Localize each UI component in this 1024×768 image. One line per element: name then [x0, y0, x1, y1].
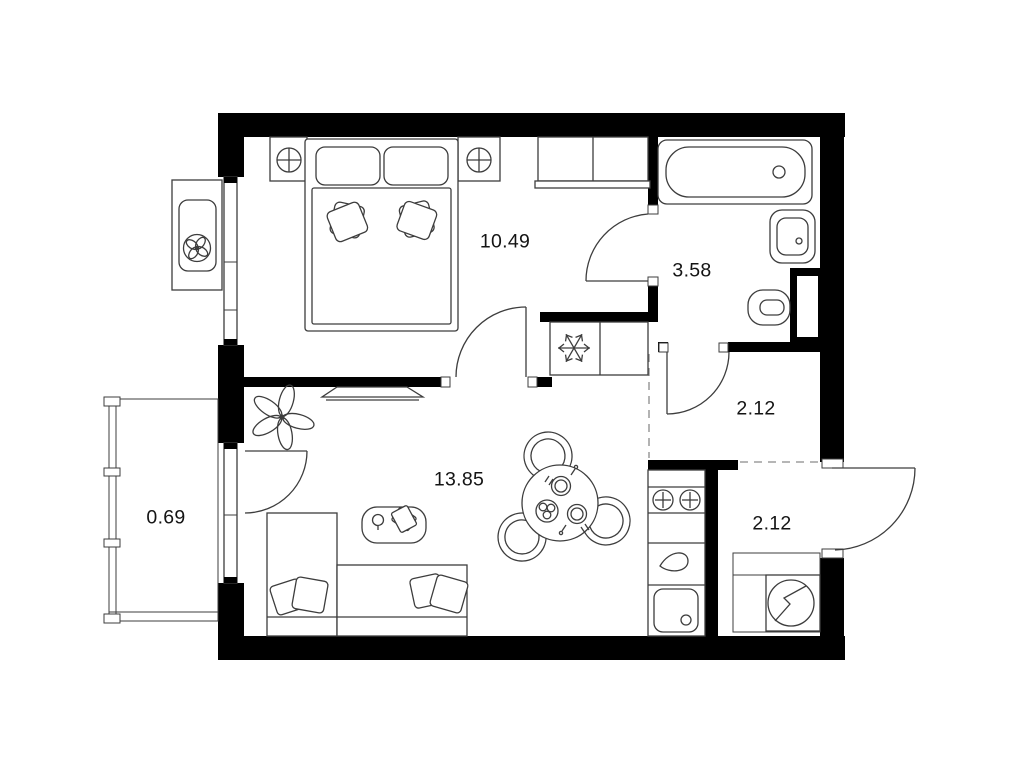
room-label-living-room: 13.85 — [434, 469, 484, 492]
bathtub-icon — [658, 140, 812, 204]
door-arc — [456, 307, 526, 377]
room-label-bathroom: 3.58 — [672, 260, 711, 283]
balcony-door — [245, 451, 307, 513]
sofa-pillow — [291, 576, 328, 613]
ac-unit — [172, 180, 222, 290]
wall-bathroom-west-lower — [648, 286, 658, 322]
balcony-door-glazing — [218, 443, 244, 583]
pillow — [384, 147, 448, 185]
wall-left-lower — [218, 583, 244, 660]
door-arc — [835, 468, 915, 550]
wash-basin-icon — [770, 210, 815, 263]
wall-right-lower — [820, 558, 844, 660]
railing-post — [104, 397, 120, 406]
toilet-icon — [748, 290, 790, 325]
railing-post — [104, 614, 120, 623]
door-arc — [667, 352, 729, 414]
plant-icon — [250, 383, 316, 450]
lamp-icon — [467, 148, 491, 172]
wall-niche-top — [540, 312, 658, 322]
bathroom-west-door — [586, 205, 658, 286]
bed-icon — [305, 139, 458, 331]
wall-kitchen-top — [648, 460, 738, 470]
entry-hall — [733, 553, 820, 632]
kitchen-unit — [648, 470, 705, 636]
room-label-hallway-upper: 2.12 — [736, 398, 775, 421]
entrance-door — [822, 459, 915, 558]
door-arc — [245, 451, 307, 513]
wall-bottom — [218, 636, 845, 660]
railing-post — [104, 468, 120, 476]
lamp-icon — [277, 148, 301, 172]
tv-icon — [322, 387, 423, 400]
wall-top — [218, 113, 845, 137]
wall-left-upper — [218, 113, 244, 177]
room-label-hallway-entry: 2.12 — [752, 513, 791, 536]
railing-post — [104, 539, 120, 547]
wardrobe-icon — [535, 137, 650, 188]
pillow — [316, 147, 380, 185]
coffee-table-icon — [362, 505, 426, 543]
bathroom-south-door — [659, 343, 729, 414]
wall-bedroom-living — [244, 377, 450, 387]
wall-left-middle — [218, 345, 244, 443]
door-arc — [586, 214, 648, 281]
shaft-duct — [797, 276, 818, 337]
wall-bedroom-living-stub — [537, 377, 552, 387]
wall-kitchen-right — [705, 470, 718, 636]
living-room-furniture — [250, 383, 630, 636]
kitchen-sink-icon — [654, 589, 698, 632]
room-label-bedroom: 10.49 — [480, 231, 530, 254]
fridge-niche — [550, 322, 648, 375]
floor-plan-drawing — [0, 0, 1024, 768]
floor-plan: 10.49 3.58 2.12 2.12 13.85 0.69 — [0, 0, 1024, 768]
wall-bathroom-west-upper — [648, 137, 658, 205]
dining-table-icon — [498, 432, 630, 561]
washing-machine-icon — [766, 575, 820, 631]
room-label-balcony: 0.69 — [146, 507, 185, 530]
